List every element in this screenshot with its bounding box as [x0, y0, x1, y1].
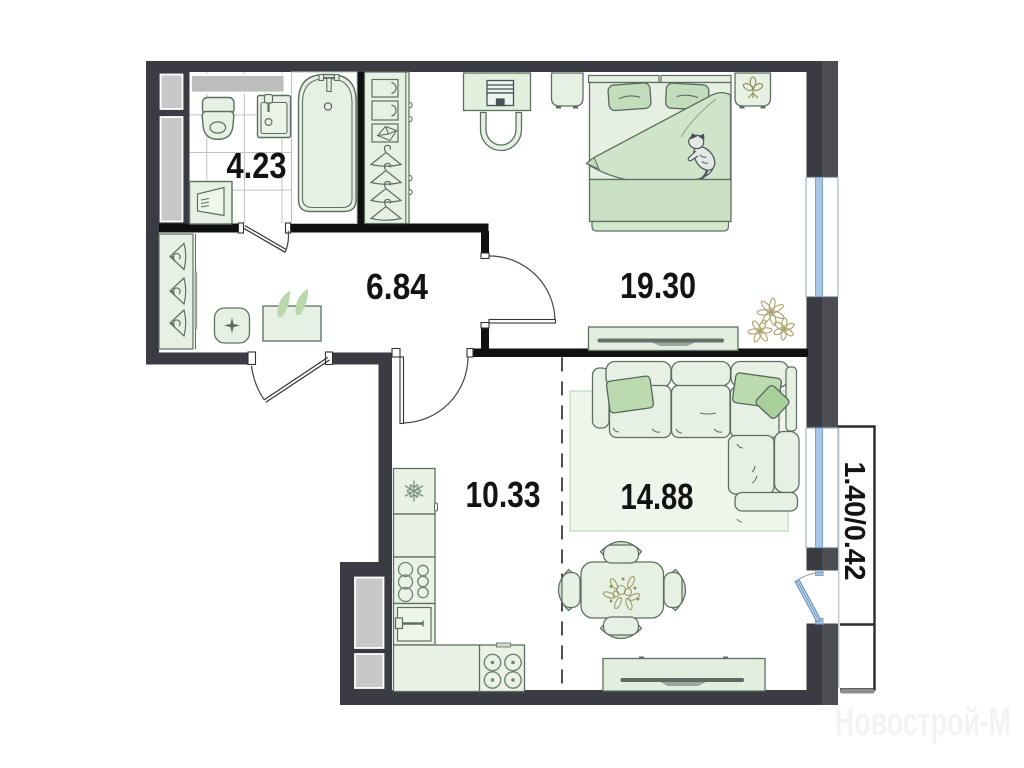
svg-text:Новострой-М: Новострой-М: [835, 700, 1011, 744]
svg-text:19.30: 19.30: [620, 265, 696, 306]
svg-text:4.23: 4.23: [227, 145, 287, 186]
svg-text:6.84: 6.84: [366, 266, 428, 307]
svg-text:14.88: 14.88: [621, 476, 694, 517]
svg-text:1.40/0.42: 1.40/0.42: [838, 462, 870, 581]
svg-text:10.33: 10.33: [466, 474, 541, 515]
